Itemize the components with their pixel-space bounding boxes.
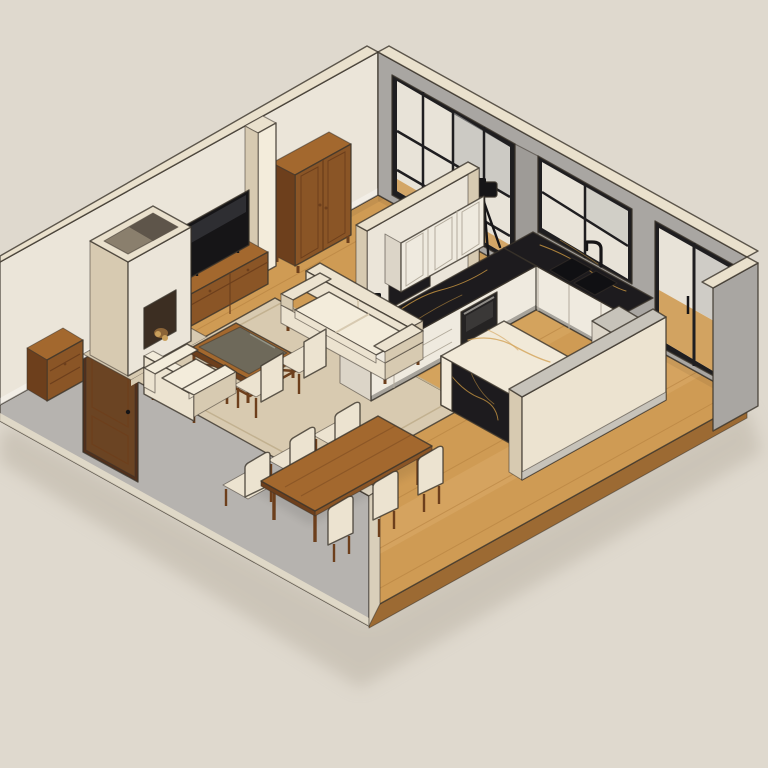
pony-wall-end bbox=[509, 389, 522, 480]
upper-cabinet-side bbox=[385, 234, 401, 292]
island-waterfall-edge bbox=[441, 356, 452, 411]
return-wall-face bbox=[713, 263, 758, 431]
render-canvas bbox=[0, 0, 768, 768]
chimney-side bbox=[90, 241, 128, 376]
isometric-room-render bbox=[0, 0, 768, 768]
